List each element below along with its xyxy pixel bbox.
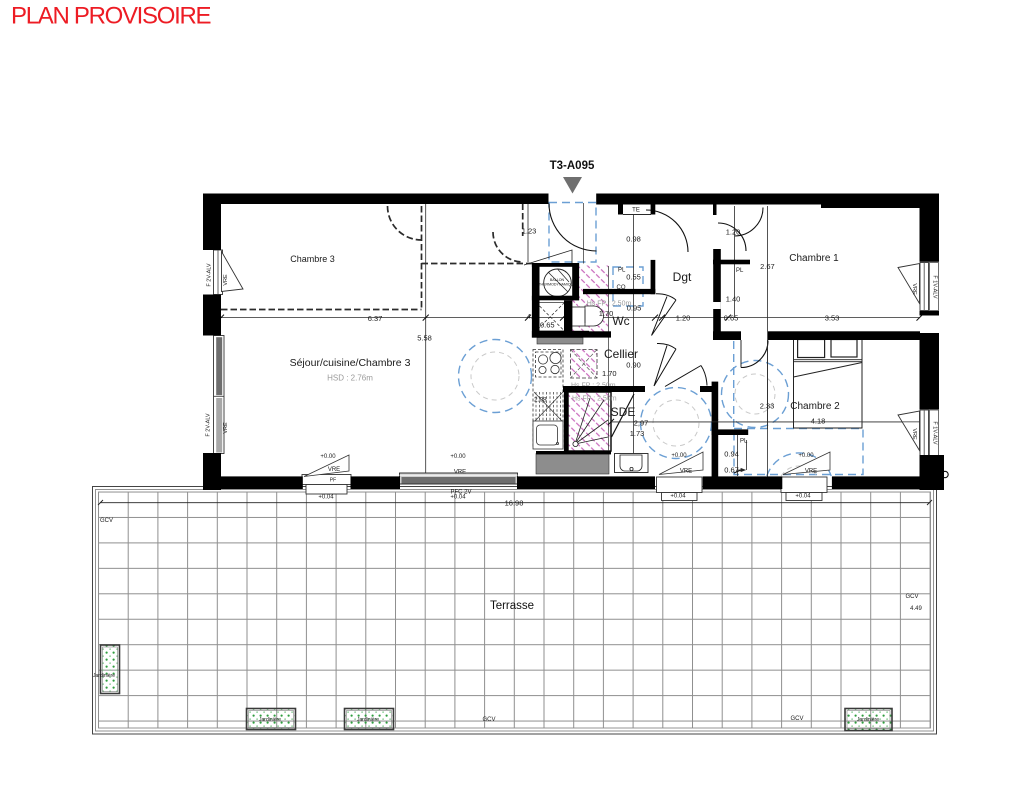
svg-text:1.70: 1.70: [602, 369, 617, 378]
svg-text:Hs FP : 2.50m: Hs FP : 2.50m: [572, 396, 617, 403]
svg-text:2.67: 2.67: [760, 262, 775, 271]
svg-text:GCV: GCV: [100, 518, 113, 524]
svg-text:PL: PL: [740, 439, 748, 445]
svg-text:Hs FP : 2.50m: Hs FP : 2.50m: [587, 301, 632, 308]
svg-text:1.20: 1.20: [676, 313, 691, 322]
svg-text:2.33: 2.33: [760, 402, 775, 411]
svg-text:F 1V-ALV: F 1V-ALV: [932, 421, 938, 444]
svg-text:+0.04: +0.04: [795, 494, 811, 500]
svg-text:VRE: VRE: [328, 467, 340, 473]
svg-text:VRE: VRE: [223, 422, 229, 434]
svg-text:Jardinière: Jardinière: [93, 673, 115, 679]
svg-text:PF: PF: [330, 478, 336, 484]
svg-text:PL: PL: [736, 268, 744, 274]
svg-text:VRE: VRE: [454, 470, 466, 476]
svg-text:4.18: 4.18: [811, 417, 826, 426]
svg-text:1.73: 1.73: [630, 429, 645, 438]
svg-text:GCV: GCV: [905, 594, 918, 600]
svg-text:+0.04: +0.04: [318, 495, 334, 501]
svg-text:PL: PL: [618, 268, 626, 274]
svg-text:SDE: SDE: [611, 405, 636, 419]
svg-text:PLAN PROVISOIRE: PLAN PROVISOIRE: [11, 3, 211, 30]
svg-text:TE: TE: [632, 208, 640, 214]
svg-text:Jardinière: Jardinière: [857, 717, 879, 723]
svg-text:+0.00: +0.00: [671, 453, 687, 459]
svg-text:6.37: 6.37: [368, 314, 383, 323]
svg-text:3.53: 3.53: [825, 313, 840, 322]
svg-text:VRE: VRE: [911, 428, 917, 440]
svg-text:+0.00: +0.00: [320, 454, 336, 460]
svg-text:0.65: 0.65: [724, 313, 739, 322]
svg-text:0.55: 0.55: [626, 273, 641, 282]
svg-text:Dgt: Dgt: [673, 270, 692, 284]
svg-text:HSD : 2.76m: HSD : 2.76m: [327, 374, 373, 383]
svg-text:Séjour/cuisine/Chambre 3: Séjour/cuisine/Chambre 3: [290, 357, 411, 369]
svg-text:0.90: 0.90: [626, 361, 641, 370]
svg-text:VRE: VRE: [223, 274, 229, 286]
svg-text:GCV: GCV: [790, 716, 803, 722]
svg-text:Jardinière: Jardinière: [259, 717, 281, 723]
svg-text:Chambre 2: Chambre 2: [790, 401, 840, 412]
svg-text:Wc: Wc: [612, 314, 629, 328]
svg-text:VRE: VRE: [680, 469, 692, 475]
svg-text:2.08: 2.08: [534, 397, 547, 404]
svg-text:Terrasse: Terrasse: [490, 600, 534, 612]
svg-text:1.20: 1.20: [726, 228, 741, 237]
svg-text:0.65: 0.65: [540, 321, 555, 330]
svg-text:T3-A095: T3-A095: [550, 160, 595, 172]
svg-text:THERMODYNAMIQUE: THERMODYNAMIQUE: [538, 283, 576, 287]
svg-text:PFC 2V: PFC 2V: [450, 490, 471, 496]
svg-text:+0.00: +0.00: [798, 453, 814, 459]
svg-text:F 1V-ALV: F 1V-ALV: [932, 275, 938, 298]
svg-text:4.49: 4.49: [910, 606, 922, 612]
svg-text:5.58: 5.58: [417, 334, 432, 343]
svg-text:+0.04: +0.04: [670, 494, 686, 500]
svg-text:0.98: 0.98: [626, 235, 641, 244]
svg-text:Cellier: Cellier: [604, 347, 638, 361]
svg-text:16.98: 16.98: [505, 499, 524, 508]
svg-text:0.67: 0.67: [724, 466, 739, 475]
svg-text:+0.00: +0.00: [450, 454, 466, 460]
svg-text:1.70: 1.70: [599, 309, 614, 318]
svg-text:F 2V-ALV: F 2V-ALV: [206, 413, 212, 436]
svg-text:Jardinière: Jardinière: [357, 717, 379, 723]
svg-text:0.94: 0.94: [724, 450, 739, 459]
svg-text:1.40: 1.40: [726, 295, 741, 304]
svg-text:Chambre 3: Chambre 3: [290, 254, 335, 264]
svg-text:GCV: GCV: [482, 717, 495, 723]
svg-text:VRE: VRE: [911, 283, 917, 295]
svg-text:1.23: 1.23: [522, 227, 537, 236]
svg-text:2,97: 2,97: [634, 419, 649, 428]
svg-text:VRE: VRE: [805, 469, 817, 475]
svg-text:F 2V-ALV: F 2V-ALV: [207, 263, 213, 286]
svg-text:BALLON: BALLON: [550, 278, 565, 282]
svg-text:Chambre 1: Chambre 1: [789, 253, 839, 264]
